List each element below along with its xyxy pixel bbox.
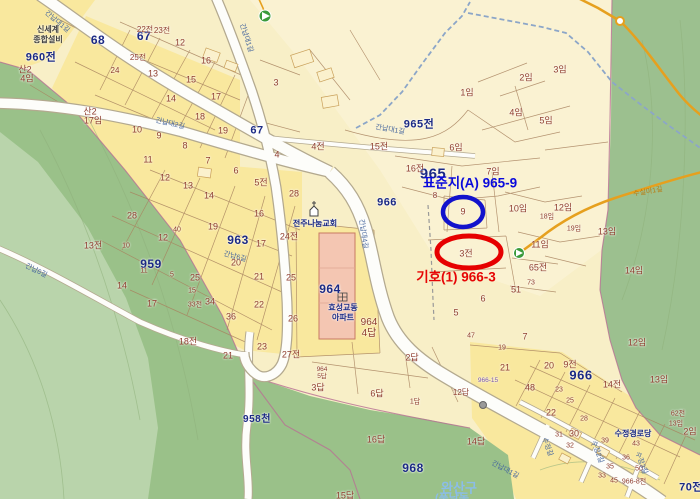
- apartment-building: [319, 233, 355, 339]
- trail-start-icon: [259, 10, 271, 22]
- cadastral-map-canvas[interactable]: 960전686767965전959963964965966966968958천7…: [0, 0, 700, 499]
- junction-dot-icon: [480, 402, 487, 409]
- map-base-art: [0, 0, 700, 499]
- trail-start-icon-2: [514, 248, 525, 259]
- road-node-icon: [616, 17, 624, 25]
